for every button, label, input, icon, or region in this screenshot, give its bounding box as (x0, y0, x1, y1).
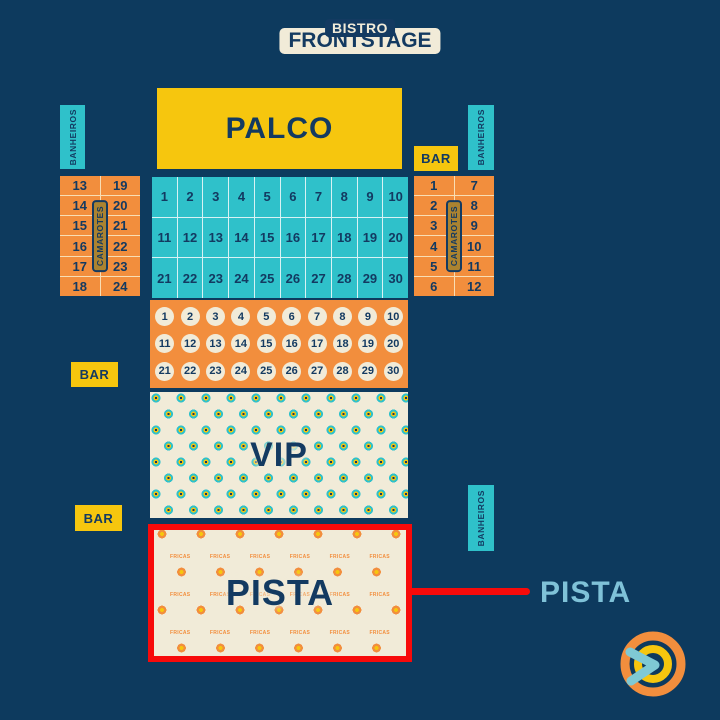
camarote-box: 12 (455, 277, 495, 296)
frontstage-seat: 18 (332, 218, 357, 258)
frontstage-seat: 8 (332, 177, 357, 217)
camarote-box: 19 (101, 176, 141, 195)
bistro-seat: 30 (384, 362, 403, 381)
bistro-seat: 8 (333, 307, 352, 326)
frontstage-seat: 1 (152, 177, 177, 217)
banheiros-top-left: BANHEIROS (60, 105, 85, 169)
banheiros-bottom-right: BANHEIROS (468, 485, 494, 551)
bistro-seat: 9 (358, 307, 377, 326)
frontstage-seat: 28 (332, 258, 357, 298)
bar-right: BAR (414, 146, 458, 171)
frontstage-seat: 29 (358, 258, 383, 298)
frontstage-seat: 9 (358, 177, 383, 217)
bar-left-upper-label: BAR (80, 367, 110, 382)
bistro-seat: 17 (308, 334, 327, 353)
bistro-seat: 16 (282, 334, 301, 353)
bistro-seat: 4 (231, 307, 250, 326)
bistro-seat: 3 (206, 307, 225, 326)
stage-block: PALCO (157, 88, 402, 169)
bistro-seat: 25 (257, 362, 276, 381)
bistro-seat: 5 (257, 307, 276, 326)
bistro-seat: 28 (333, 362, 352, 381)
bistro-seat: 6 (282, 307, 301, 326)
pista-watermark-text: FRICAS (290, 630, 310, 636)
pista-watermark-row: FRICASFRICASFRICASFRICASFRICASFRICAS (154, 630, 406, 636)
frontstage-seat: 15 (255, 218, 280, 258)
bistro-seat: 19 (358, 334, 377, 353)
banheiros-bottom-right-label: BANHEIROS (476, 490, 486, 546)
pista-watermark-text: FRICAS (210, 630, 230, 636)
frontstage-seat: 6 (281, 177, 306, 217)
pista-watermark-text: FRICAS (370, 630, 390, 636)
pista-watermark-text: FRICAS (370, 592, 390, 598)
banheiros-top-right-label: BANHEIROS (476, 109, 486, 165)
camarotes-left-label: CAMAROTES (92, 200, 108, 272)
frontstage-seat: 11 (152, 218, 177, 258)
bistro-seat: 2 (181, 307, 200, 326)
pista-watermark-text: FRICAS (330, 554, 350, 560)
bar-left-lower-label: BAR (84, 511, 114, 526)
camarote-box: 1 (414, 176, 454, 195)
frontstage-seat: 30 (383, 258, 408, 298)
frontstage-seat: 7 (306, 177, 331, 217)
bistro-label: BISTRO (325, 19, 395, 37)
pista-watermark-text: FRICAS (210, 554, 230, 560)
frontstage-seat: 4 (229, 177, 254, 217)
pista-watermark-row: FRICASFRICASFRICASFRICASFRICASFRICAS (154, 554, 406, 560)
frontstage-seat: 25 (255, 258, 280, 298)
frontstage-seat: 21 (152, 258, 177, 298)
callout-line (412, 588, 530, 595)
pista-watermark-text: FRICAS (290, 554, 310, 560)
bistro-seat: 18 (333, 334, 352, 353)
bistro-seat: 15 (257, 334, 276, 353)
frontstage-seat: 16 (281, 218, 306, 258)
bistro-seat: 12 (181, 334, 200, 353)
bistro-seat: 26 (282, 362, 301, 381)
bistro-seat: 10 (384, 307, 403, 326)
frontstage-section: 1234567891011121314151617181920212223242… (152, 177, 408, 298)
frontstage-seat: 13 (203, 218, 228, 258)
brand-swirl-logo-icon (617, 629, 687, 699)
pista-watermark-text: FRICAS (250, 554, 270, 560)
bistro-seat: 23 (206, 362, 225, 381)
callout-text: PISTA (540, 576, 631, 610)
banheiros-top-right: BANHEIROS (468, 105, 494, 170)
frontstage-seat: 19 (358, 218, 383, 258)
pista-watermark-text: FRICAS (170, 630, 190, 636)
frontstage-seat: 14 (229, 218, 254, 258)
camarote-box: 7 (455, 176, 495, 195)
bistro-seat: 24 (231, 362, 250, 381)
bistro-seat: 29 (358, 362, 377, 381)
stage-label: PALCO (226, 112, 334, 146)
bistro-seat: 13 (206, 334, 225, 353)
pista-watermark-text: FRICAS (330, 630, 350, 636)
banheiros-top-left-label: BANHEIROS (68, 109, 78, 165)
bistro-seat: 7 (308, 307, 327, 326)
frontstage-seat: 26 (281, 258, 306, 298)
bistro-seat: 22 (181, 362, 200, 381)
bar-left-lower: BAR (75, 505, 122, 531)
bar-right-label: BAR (421, 151, 451, 166)
frontstage-seat: 17 (306, 218, 331, 258)
frontstage-seat: 20 (383, 218, 408, 258)
pista-watermark-text: FRICAS (250, 630, 270, 636)
frontstage-seat: 10 (383, 177, 408, 217)
pista-label: PISTA (226, 572, 334, 614)
bistro-seat: 1 (155, 307, 174, 326)
bistro-seat: 11 (155, 334, 174, 353)
vip-label: VIP (250, 436, 308, 475)
frontstage-seat: 27 (306, 258, 331, 298)
frontstage-seat: 23 (203, 258, 228, 298)
bistro-seat: 14 (231, 334, 250, 353)
pista-watermark-text: FRICAS (170, 554, 190, 560)
bistro-seat: 20 (384, 334, 403, 353)
frontstage-seat: 22 (178, 258, 203, 298)
frontstage-seat: 12 (178, 218, 203, 258)
frontstage-seat: 24 (229, 258, 254, 298)
frontstage-seat: 2 (178, 177, 203, 217)
vip-section: VIP (150, 392, 408, 518)
camarotes-right-label: CAMAROTES (446, 200, 462, 272)
camarote-box: 6 (414, 277, 454, 296)
bar-left-upper: BAR (71, 362, 118, 387)
bistro-seat: 27 (308, 362, 327, 381)
camarote-box: 24 (101, 277, 141, 296)
frontstage-seat: 3 (203, 177, 228, 217)
pista-section-highlighted: PISTA FRICASFRICASFRICASFRICASFRICASFRIC… (148, 524, 412, 662)
bistro-section: 1234567891011121314151617181920212223242… (150, 300, 408, 388)
camarote-box: 18 (60, 277, 100, 296)
camarote-box: 13 (60, 176, 100, 195)
pista-watermark-text: FRICAS (370, 554, 390, 560)
frontstage-seat: 5 (255, 177, 280, 217)
pista-watermark-text: FRICAS (170, 592, 190, 598)
bistro-seat: 21 (155, 362, 174, 381)
